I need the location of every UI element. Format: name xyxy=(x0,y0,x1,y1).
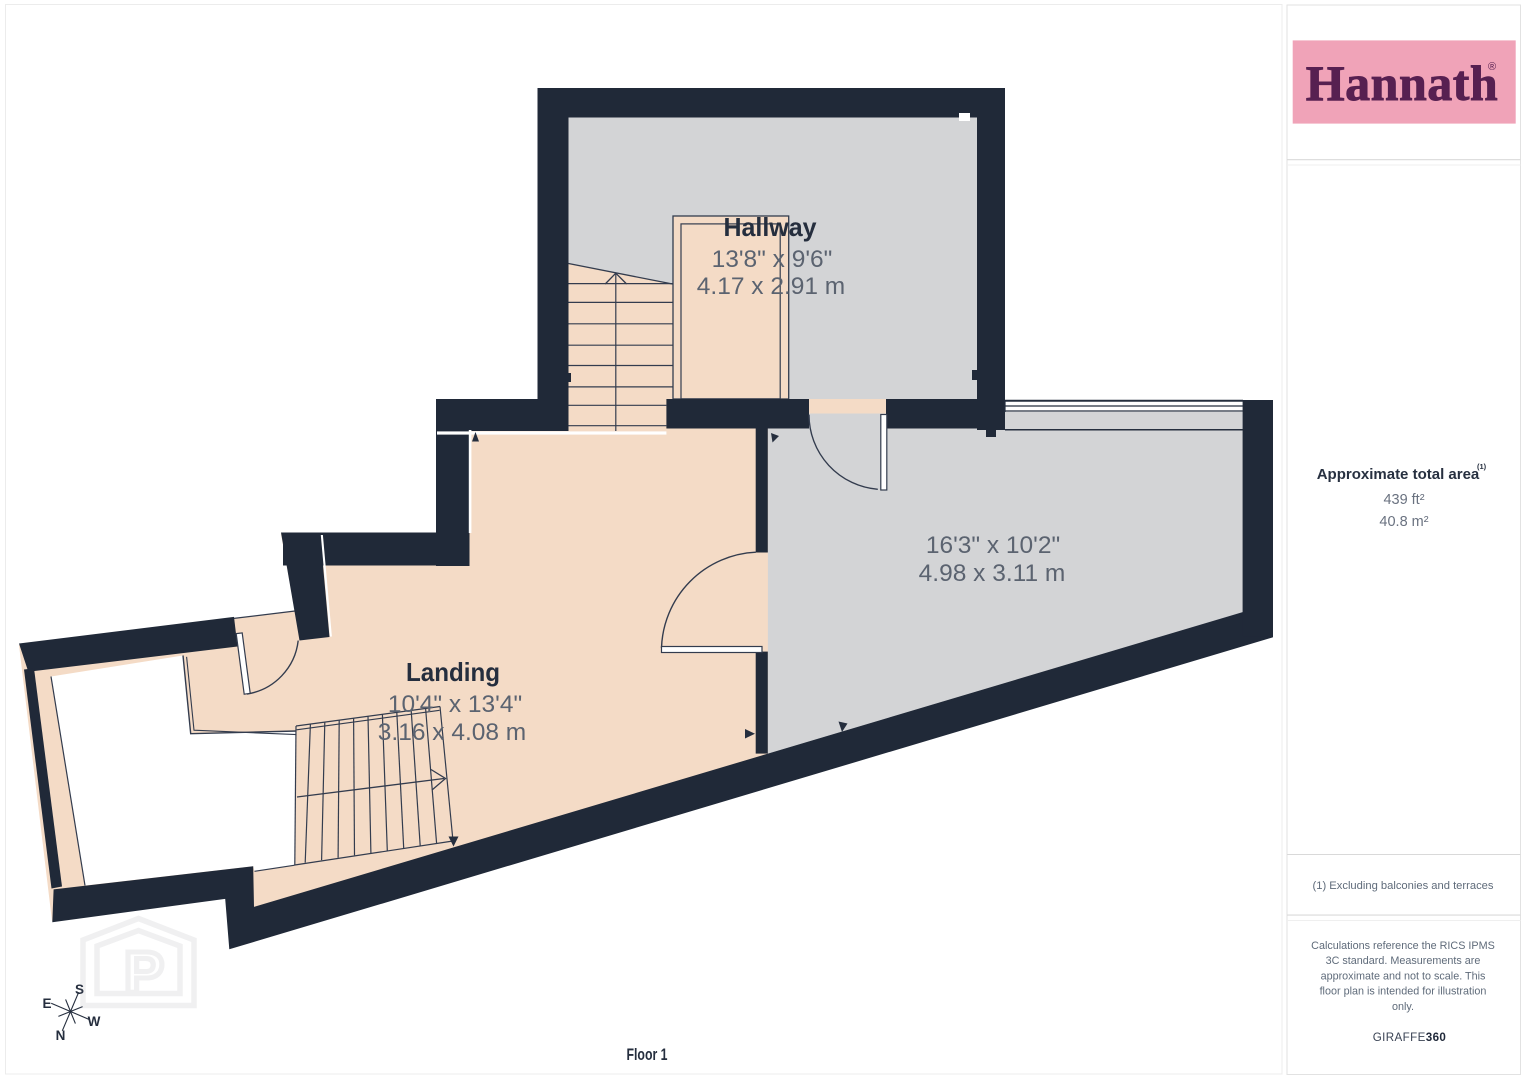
svg-text:3C standard. Measurements are: 3C standard. Measurements are xyxy=(1326,955,1481,967)
svg-text:(1) Excluding balconies and te: (1) Excluding balconies and terraces xyxy=(1313,880,1494,892)
svg-text:Landing: Landing xyxy=(406,657,500,687)
svg-text:floor plan is intended for ill: floor plan is intended for illustration xyxy=(1320,986,1487,998)
svg-text:only.: only. xyxy=(1392,1001,1414,1013)
svg-text:Approximate total area: Approximate total area xyxy=(1317,466,1480,483)
svg-text:®: ® xyxy=(1488,61,1496,73)
svg-text:13'8" x 9'6": 13'8" x 9'6" xyxy=(712,246,833,273)
svg-text:Calculations reference the RIC: Calculations reference the RICS IPMS xyxy=(1311,940,1495,952)
svg-text:4.98 x 3.11 m: 4.98 x 3.11 m xyxy=(919,560,1066,587)
svg-text:GIRAFFE360: GIRAFFE360 xyxy=(1373,1031,1447,1044)
svg-text:approximate and not to scale.: approximate and not to scale. This xyxy=(1321,970,1486,982)
svg-text:439 ft²: 439 ft² xyxy=(1383,492,1424,508)
svg-text:40.8 m²: 40.8 m² xyxy=(1379,514,1428,530)
svg-text:10'4" x 13'4": 10'4" x 13'4" xyxy=(388,691,522,718)
svg-text:E: E xyxy=(42,996,51,1011)
svg-text:N: N xyxy=(56,1028,66,1043)
svg-text:4.17 x 2.91 m: 4.17 x 2.91 m xyxy=(697,273,845,300)
svg-text:Floor 1: Floor 1 xyxy=(627,1045,668,1064)
svg-text:Hallway: Hallway xyxy=(724,212,818,242)
svg-text:16'3" x 10'2": 16'3" x 10'2" xyxy=(926,532,1060,559)
svg-text:W: W xyxy=(88,1014,101,1029)
svg-text:3.16 x 4.08 m: 3.16 x 4.08 m xyxy=(378,719,526,746)
svg-text:P: P xyxy=(124,940,164,1005)
svg-text:Hannath: Hannath xyxy=(1306,55,1498,111)
svg-text:(1): (1) xyxy=(1477,462,1487,471)
